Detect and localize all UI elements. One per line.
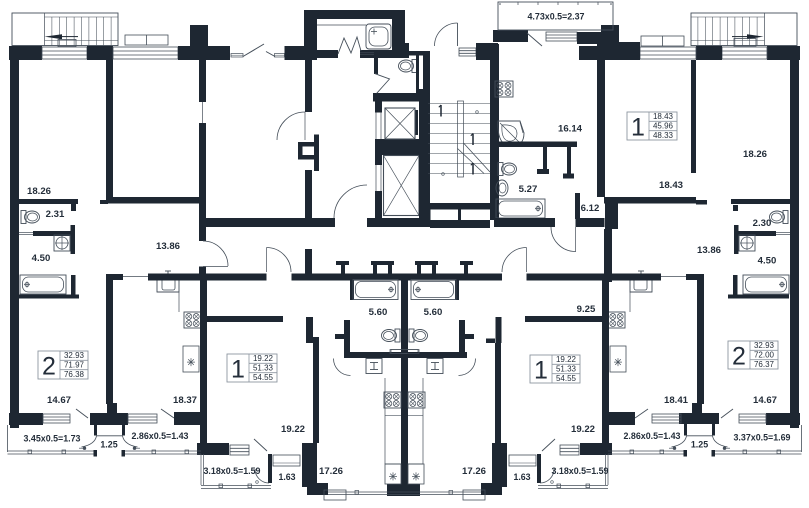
- svg-text:1.25: 1.25: [100, 440, 117, 450]
- svg-text:1.63: 1.63: [278, 472, 295, 482]
- svg-text:18.43: 18.43: [659, 180, 683, 191]
- svg-text:6.12: 6.12: [581, 203, 600, 214]
- svg-text:54.55: 54.55: [556, 374, 577, 383]
- svg-text:16.14: 16.14: [558, 124, 583, 135]
- svg-text:1.63: 1.63: [513, 472, 530, 482]
- svg-text:17.26: 17.26: [319, 466, 343, 477]
- svg-text:19.22: 19.22: [281, 424, 305, 435]
- svg-text:32.93: 32.93: [64, 351, 85, 360]
- svg-text:2: 2: [42, 353, 56, 381]
- svg-text:2.31: 2.31: [46, 209, 65, 220]
- svg-text:72.00: 72.00: [754, 350, 775, 359]
- svg-text:71.97: 71.97: [64, 360, 85, 369]
- svg-text:1: 1: [534, 357, 548, 385]
- svg-text:19.22: 19.22: [571, 424, 595, 435]
- svg-text:3.45x0.5=1.73: 3.45x0.5=1.73: [23, 434, 80, 444]
- svg-text:9.25: 9.25: [577, 304, 596, 315]
- svg-text:3.18x0.5=1.59: 3.18x0.5=1.59: [203, 466, 260, 476]
- svg-text:54.55: 54.55: [253, 373, 274, 382]
- svg-text:14.67: 14.67: [47, 395, 71, 406]
- svg-text:1.25: 1.25: [691, 440, 708, 450]
- svg-text:2: 2: [732, 343, 746, 371]
- svg-text:2.86x0.5=1.43: 2.86x0.5=1.43: [623, 431, 680, 441]
- svg-text:5.60: 5.60: [424, 307, 443, 318]
- svg-text:19.22: 19.22: [253, 354, 274, 363]
- svg-text:76.38: 76.38: [64, 370, 85, 379]
- svg-text:51.33: 51.33: [556, 364, 577, 373]
- svg-text:17.26: 17.26: [462, 466, 486, 477]
- svg-text:2.30: 2.30: [753, 218, 772, 229]
- svg-text:76.37: 76.37: [754, 360, 775, 369]
- svg-text:32.93: 32.93: [754, 341, 775, 350]
- svg-text:18.26: 18.26: [27, 186, 51, 197]
- svg-text:18.26: 18.26: [743, 149, 767, 160]
- svg-text:18.41: 18.41: [664, 395, 689, 406]
- svg-text:4.50: 4.50: [758, 256, 777, 267]
- svg-text:1: 1: [231, 356, 245, 384]
- svg-text:13.86: 13.86: [156, 241, 180, 252]
- svg-text:19.22: 19.22: [556, 355, 577, 364]
- svg-text:13.86: 13.86: [697, 245, 721, 256]
- svg-text:5.27: 5.27: [519, 184, 538, 195]
- svg-text:18.37: 18.37: [173, 395, 197, 406]
- svg-text:48.33: 48.33: [653, 131, 674, 140]
- svg-text:3.37x0.5=1.69: 3.37x0.5=1.69: [733, 433, 790, 443]
- svg-text:2.86x0.5=1.43: 2.86x0.5=1.43: [131, 431, 188, 441]
- svg-text:3.18x0.5=1.59: 3.18x0.5=1.59: [551, 466, 608, 476]
- svg-text:5.60: 5.60: [369, 307, 388, 318]
- svg-text:51.33: 51.33: [253, 363, 274, 372]
- svg-text:4.50: 4.50: [32, 253, 51, 264]
- svg-text:4.73x0.5=2.37: 4.73x0.5=2.37: [527, 12, 584, 22]
- svg-text:14.67: 14.67: [753, 395, 777, 406]
- svg-text:1: 1: [631, 114, 645, 142]
- svg-text:45.96: 45.96: [653, 121, 674, 130]
- svg-text:18.43: 18.43: [653, 112, 674, 121]
